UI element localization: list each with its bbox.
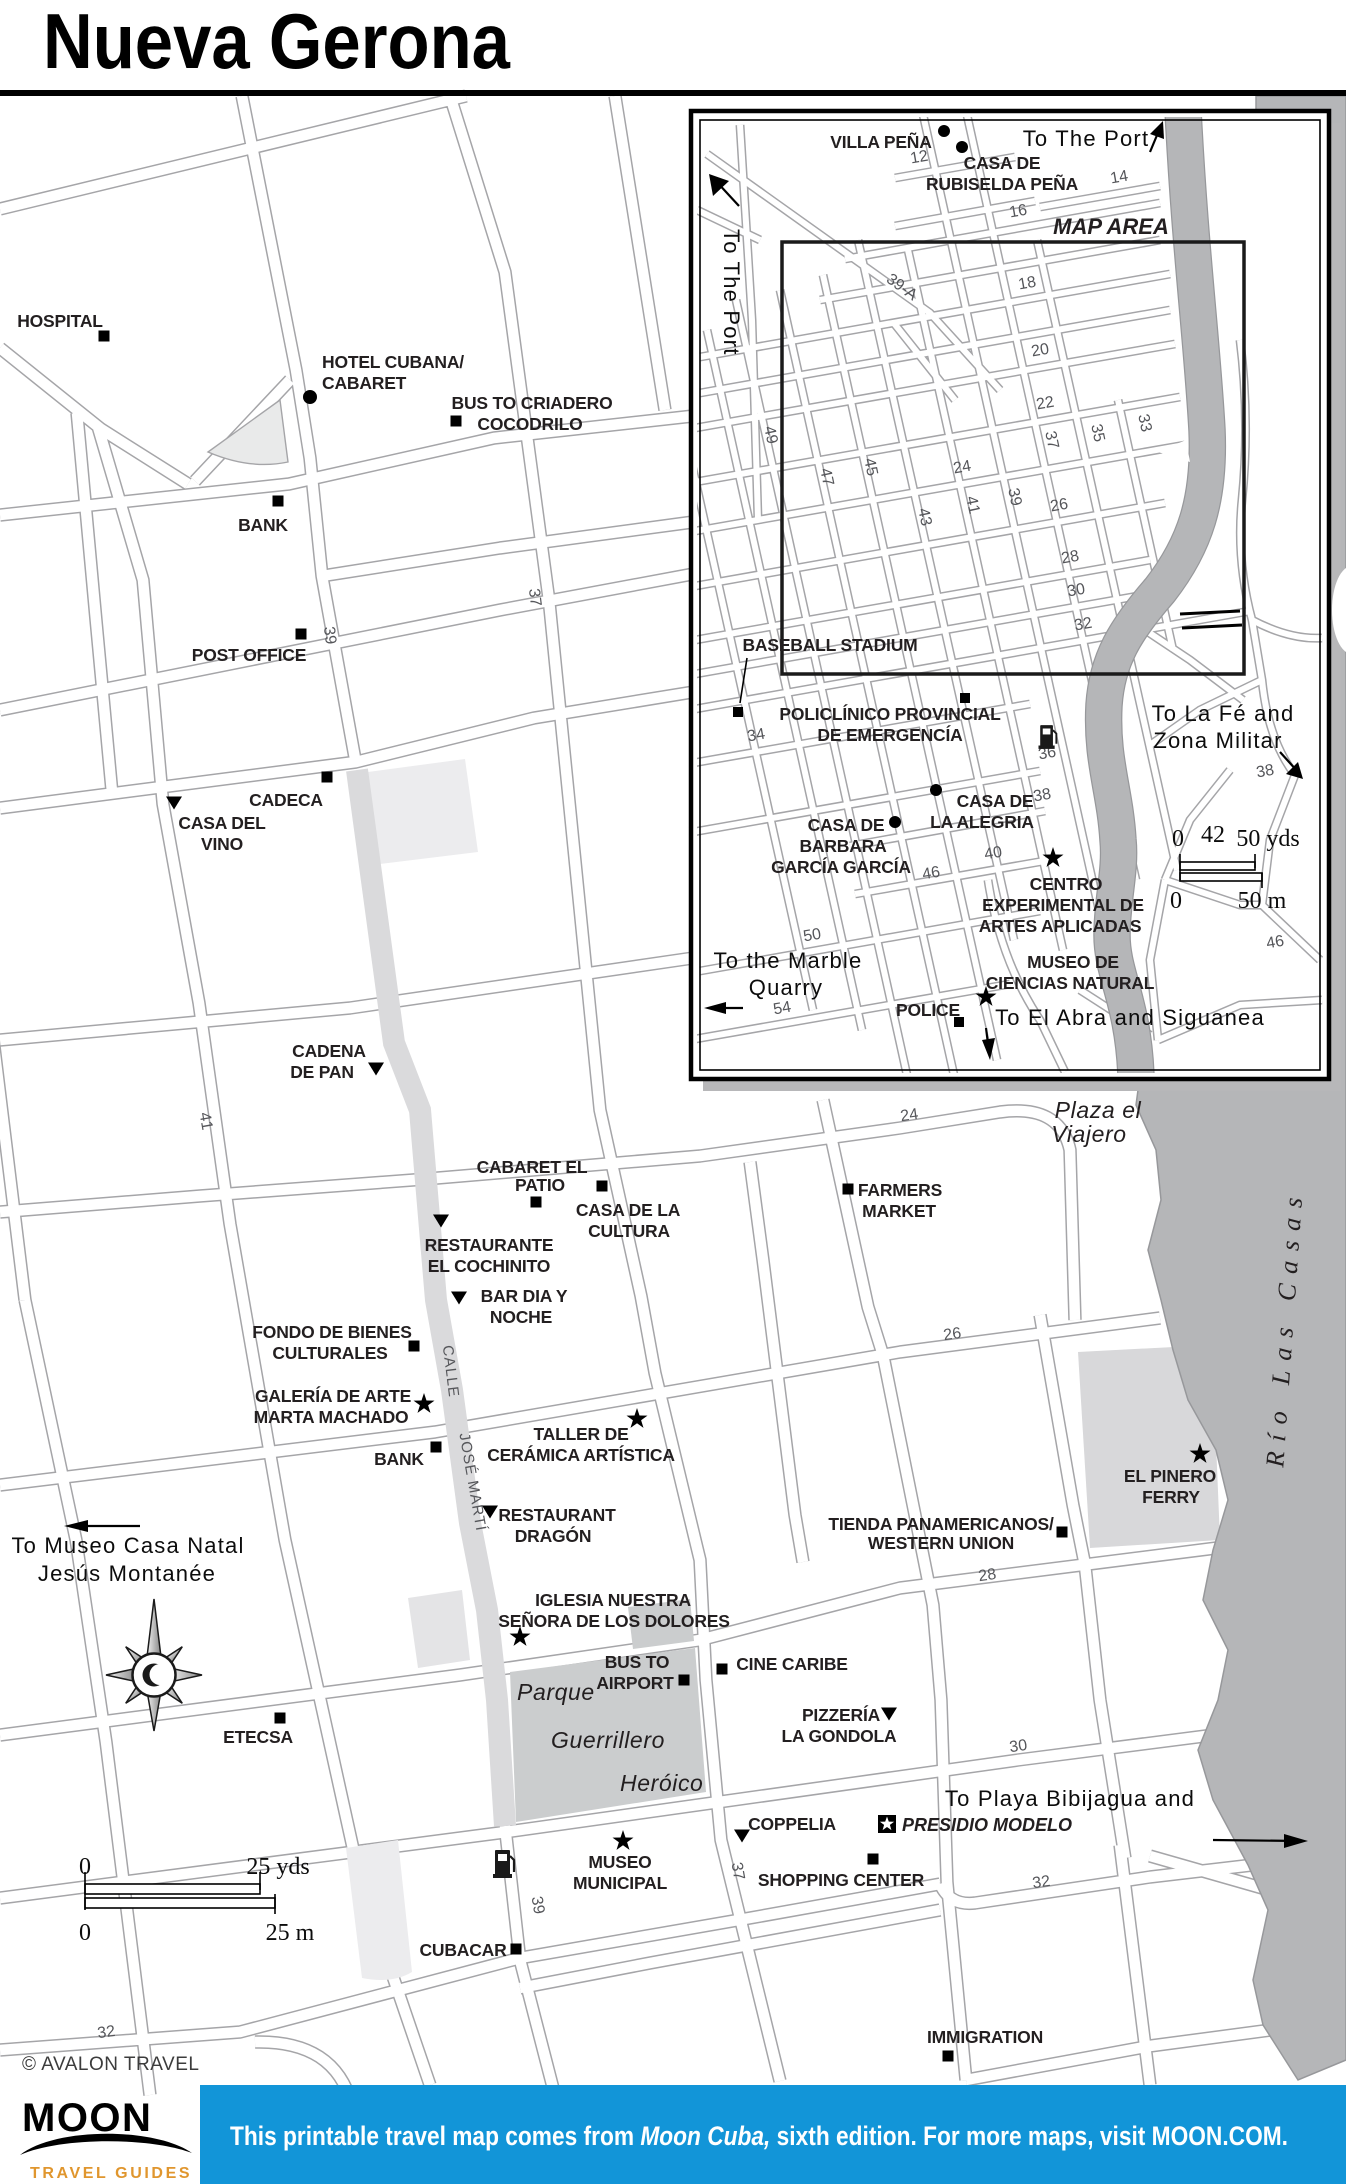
svg-text:33: 33 [1134, 413, 1154, 434]
svg-text:PRESIDIO MODELO: PRESIDIO MODELO [902, 1815, 1072, 1835]
svg-text:LA ALEGRIA: LA ALEGRIA [930, 812, 1034, 832]
svg-text:Viajero: Viajero [1051, 1121, 1126, 1147]
svg-text:CADENA: CADENA [292, 1041, 366, 1061]
svg-text:CERÁMICA ARTÍSTICA: CERÁMICA ARTÍSTICA [487, 1444, 675, 1465]
svg-text:28: 28 [977, 1566, 997, 1585]
svg-text:To Museo Casa Natal: To Museo Casa Natal [11, 1533, 244, 1558]
svg-text:CENTRO: CENTRO [1030, 874, 1103, 894]
svg-text:CASA DE: CASA DE [964, 153, 1041, 173]
svg-text:46: 46 [921, 864, 942, 884]
svg-text:VINO: VINO [201, 834, 243, 854]
svg-text:39: 39 [1004, 487, 1024, 508]
svg-text:CASA DEL: CASA DEL [178, 813, 266, 833]
svg-text:38: 38 [1255, 762, 1276, 782]
svg-text:41: 41 [196, 1111, 216, 1132]
svg-text:26: 26 [942, 1325, 962, 1344]
svg-text:14: 14 [1109, 168, 1130, 188]
svg-text:LA GONDOLA: LA GONDOLA [782, 1726, 898, 1746]
svg-text:CIENCIAS NATURAL: CIENCIAS NATURAL [986, 973, 1155, 993]
svg-text:54: 54 [772, 999, 793, 1019]
svg-text:BUS TO: BUS TO [605, 1652, 670, 1672]
svg-text:47: 47 [816, 467, 836, 488]
svg-text:DE PAN: DE PAN [290, 1062, 354, 1082]
svg-text:COCODRILO: COCODRILO [477, 414, 582, 434]
svg-text:CASA DE LA: CASA DE LA [576, 1200, 681, 1220]
svg-text:POLICE: POLICE [896, 1000, 960, 1020]
svg-text:0: 0 [1172, 826, 1184, 852]
svg-text:Parque: Parque [517, 1679, 595, 1705]
svg-text:Nueva Gerona: Nueva Gerona [43, 0, 511, 85]
svg-text:MARKET: MARKET [862, 1201, 936, 1221]
svg-text:24: 24 [952, 458, 973, 478]
svg-text:© AVALON TRAVEL: © AVALON TRAVEL [22, 2054, 199, 2075]
svg-text:41: 41 [962, 495, 982, 516]
svg-text:BANK: BANK [374, 1449, 424, 1469]
svg-text:18: 18 [1017, 274, 1038, 294]
svg-text:DE EMERGENCÍA: DE EMERGENCÍA [817, 724, 963, 745]
svg-text:0: 0 [1170, 888, 1182, 914]
svg-text:30: 30 [1066, 581, 1087, 601]
svg-text:Heróico: Heróico [620, 1770, 703, 1796]
svg-text:CASA DE: CASA DE [808, 815, 885, 835]
svg-text:30: 30 [1008, 1737, 1028, 1756]
svg-text:28: 28 [1060, 548, 1081, 568]
svg-text:CASA DE: CASA DE [957, 791, 1034, 811]
svg-text:ETECSA: ETECSA [223, 1727, 293, 1747]
svg-text:BUS TO CRIADERO: BUS TO CRIADERO [452, 393, 613, 413]
svg-text:38: 38 [1032, 786, 1053, 806]
svg-text:To La Fé and: To La Fé and [1152, 701, 1295, 726]
svg-text:To El Abra and Siguanea: To El Abra and Siguanea [995, 1005, 1265, 1030]
svg-text:MUSEO DE: MUSEO DE [1027, 952, 1119, 972]
svg-text:20: 20 [1030, 341, 1051, 361]
svg-text:49: 49 [760, 425, 780, 446]
svg-text:24: 24 [899, 1106, 919, 1125]
svg-text:To The Port: To The Port [1023, 126, 1150, 151]
svg-text:RESTAURANT: RESTAURANT [498, 1505, 616, 1525]
svg-text:CULTURALES: CULTURALES [272, 1343, 387, 1363]
svg-text:50 m: 50 m [1238, 888, 1287, 914]
svg-text:CABARET EL: CABARET EL [477, 1157, 588, 1177]
svg-text:Plaza el: Plaza el [1055, 1097, 1142, 1123]
svg-text:To Playa Bibijagua and: To Playa Bibijagua and [945, 1786, 1195, 1811]
svg-text:SHOPPING CENTER: SHOPPING CENTER [758, 1870, 925, 1890]
svg-text:ARTES APLICADAS: ARTES APLICADAS [979, 916, 1142, 936]
svg-text:26: 26 [1049, 496, 1070, 516]
svg-text:40: 40 [983, 844, 1004, 864]
svg-text:37: 37 [728, 1861, 748, 1882]
svg-text:RESTAURANTE: RESTAURANTE [425, 1235, 554, 1255]
svg-text:COPPELIA: COPPELIA [748, 1814, 836, 1834]
svg-text:42: 42 [1201, 822, 1225, 848]
svg-text:TALLER DE: TALLER DE [533, 1424, 628, 1444]
svg-text:50: 50 [802, 926, 823, 946]
svg-text:MUNICIPAL: MUNICIPAL [573, 1873, 668, 1893]
svg-text:SEÑORA DE LOS DOLORES: SEÑORA DE LOS DOLORES [498, 1610, 729, 1631]
svg-text:EXPERIMENTAL DE: EXPERIMENTAL DE [982, 895, 1144, 915]
svg-text:FARMERS: FARMERS [858, 1180, 942, 1200]
svg-text:32: 32 [96, 2023, 116, 2042]
svg-text:32: 32 [1073, 615, 1094, 635]
svg-text:IMMIGRATION: IMMIGRATION [927, 2027, 1043, 2047]
svg-text:Zona Militar: Zona Militar [1153, 728, 1282, 753]
svg-text:FERRY: FERRY [1142, 1487, 1200, 1507]
svg-text:HOTEL CUBANA/: HOTEL CUBANA/ [322, 352, 464, 372]
svg-text:Guerrillero: Guerrillero [551, 1727, 665, 1753]
svg-text:25 yds: 25 yds [246, 1854, 309, 1880]
svg-text:32: 32 [1031, 1873, 1051, 1892]
svg-text:50 yds: 50 yds [1236, 826, 1299, 852]
svg-text:GALERÍA DE ARTE: GALERÍA DE ARTE [255, 1385, 411, 1406]
svg-text:MOON: MOON [22, 2096, 152, 2140]
svg-text:MUSEO: MUSEO [588, 1852, 651, 1872]
svg-text:RUBISELDA PEÑA: RUBISELDA PEÑA [926, 173, 1079, 194]
svg-text:37: 37 [1041, 430, 1061, 451]
svg-text:EL COCHINITO: EL COCHINITO [428, 1256, 550, 1276]
svg-text:CINE CARIBE: CINE CARIBE [736, 1654, 848, 1674]
svg-text:To The Port: To The Port [719, 229, 744, 356]
svg-text:37: 37 [525, 588, 544, 608]
svg-text:POLICLÍNICO PROVINCIAL: POLICLÍNICO PROVINCIAL [779, 703, 1001, 724]
svg-text:45: 45 [860, 457, 880, 478]
svg-text:This printable travel map come: This printable travel map comes from Moo… [230, 2121, 1288, 2151]
svg-text:MAP AREA: MAP AREA [1053, 214, 1169, 239]
svg-text:Quarry: Quarry [749, 975, 823, 1000]
svg-text:16: 16 [1008, 202, 1029, 222]
svg-text:BANK: BANK [238, 515, 288, 535]
svg-text:43: 43 [914, 507, 934, 528]
svg-text:BARBARA: BARBARA [799, 836, 887, 856]
svg-text:CABARET: CABARET [322, 373, 407, 393]
svg-text:VILLA PEÑA: VILLA PEÑA [830, 131, 932, 152]
svg-text:0: 0 [79, 1920, 91, 1946]
svg-text:35: 35 [1087, 423, 1107, 444]
svg-text:39: 39 [320, 626, 339, 646]
svg-text:WESTERN UNION: WESTERN UNION [868, 1533, 1014, 1553]
svg-text:PIZZERÍA: PIZZERÍA [802, 1704, 881, 1725]
svg-text:39: 39 [528, 1895, 548, 1916]
svg-text:POST OFFICE: POST OFFICE [192, 645, 306, 665]
svg-text:TRAVEL GUIDES: TRAVEL GUIDES [30, 2165, 192, 2182]
svg-text:TIENDA PANAMERICANOS/: TIENDA PANAMERICANOS/ [828, 1514, 1054, 1534]
svg-text:25 m: 25 m [266, 1920, 315, 1946]
svg-text:AIRPORT: AIRPORT [596, 1673, 674, 1693]
svg-text:PATIO: PATIO [515, 1175, 565, 1195]
svg-text:IGLESIA NUESTRA: IGLESIA NUESTRA [535, 1590, 691, 1610]
svg-text:Jesús Montanée: Jesús Montanée [38, 1561, 216, 1586]
svg-text:EL PINERO: EL PINERO [1124, 1466, 1216, 1486]
svg-text:CULTURA: CULTURA [588, 1221, 670, 1241]
svg-text:34: 34 [746, 726, 767, 746]
svg-text:FONDO DE BIENES: FONDO DE BIENES [252, 1322, 411, 1342]
svg-text:46: 46 [1265, 933, 1286, 953]
svg-text:MARTA MACHADO: MARTA MACHADO [254, 1407, 409, 1427]
svg-text:22: 22 [1035, 394, 1056, 414]
svg-text:BAR DIA Y: BAR DIA Y [481, 1286, 568, 1306]
svg-text:BASEBALL STADIUM: BASEBALL STADIUM [742, 635, 917, 655]
svg-text:CADECA: CADECA [249, 790, 323, 810]
svg-text:To the Marble: To the Marble [714, 948, 863, 973]
svg-text:HOSPITAL: HOSPITAL [17, 311, 103, 331]
svg-text:NOCHE: NOCHE [490, 1307, 552, 1327]
svg-text:GARCÍA GARCÍA: GARCÍA GARCÍA [771, 856, 911, 877]
svg-text:CUBACAR: CUBACAR [419, 1940, 507, 1960]
svg-text:DRAGÓN: DRAGÓN [515, 1525, 592, 1546]
